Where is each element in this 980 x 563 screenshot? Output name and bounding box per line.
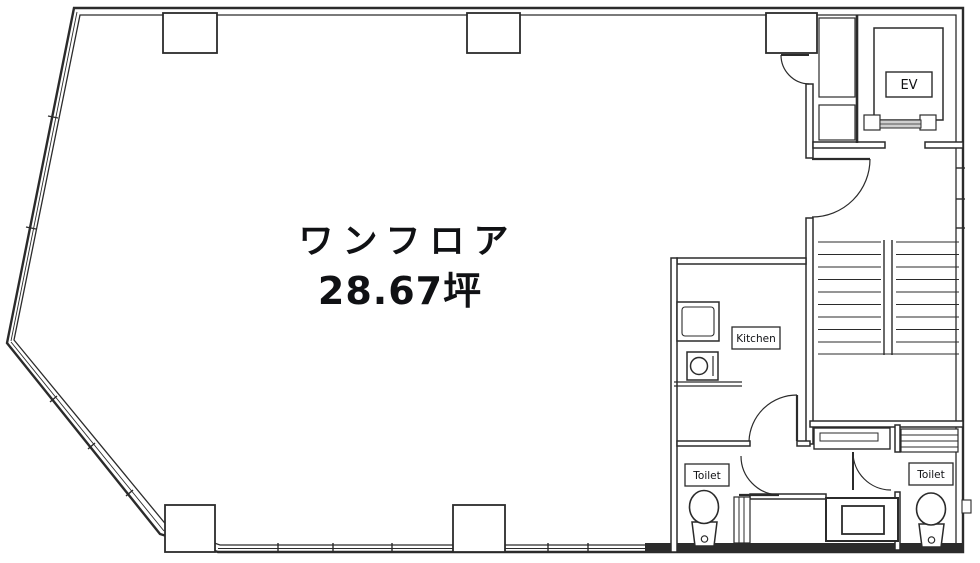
- area-label-line2: 28.67坪: [318, 269, 482, 313]
- toilet-left-label: Toilet: [692, 470, 720, 482]
- floor-plan-page: EV Kitchen Toilet: [0, 0, 980, 563]
- washbasin-counter: [814, 428, 890, 449]
- toilet-right-bowl: [917, 493, 946, 525]
- utility-sink: [826, 498, 898, 541]
- toilet-right-label: Toilet: [916, 469, 944, 481]
- floor-plan-svg: EV Kitchen Toilet: [0, 0, 980, 563]
- bottom-solid-wall: [645, 543, 964, 553]
- toilet-right-shelf: [901, 429, 958, 452]
- elevator-label: EV: [900, 78, 917, 93]
- kitchen-label: Kitchen: [736, 333, 775, 345]
- right-wall-vent-notch: [962, 500, 971, 513]
- toilet-left-bowl: [690, 491, 719, 524]
- duct-strip: [734, 497, 750, 543]
- pipe-shaft-lower: [819, 105, 855, 140]
- elevator-block: EV: [819, 15, 943, 143]
- area-label-line1: ワンフロア: [299, 222, 518, 262]
- elevator-door-jamb-right: [920, 115, 936, 130]
- pipe-shaft-upper: [819, 18, 855, 97]
- elevator-door-jamb-left: [864, 115, 880, 130]
